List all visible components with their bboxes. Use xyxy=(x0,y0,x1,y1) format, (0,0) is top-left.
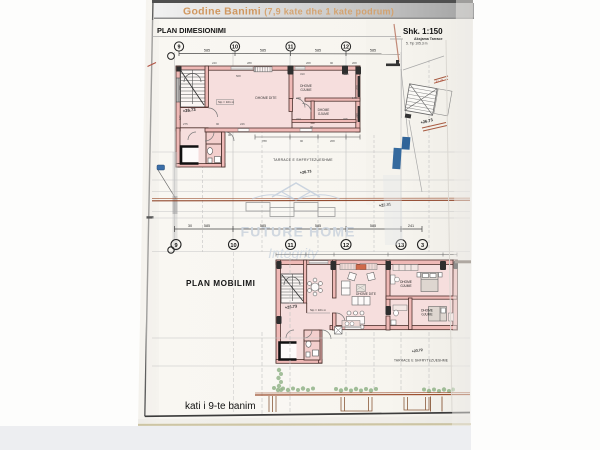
svg-text:268: 268 xyxy=(352,61,357,65)
svg-text:268: 268 xyxy=(306,61,311,65)
svg-text:248: 248 xyxy=(296,96,301,100)
svg-text:568: 568 xyxy=(236,74,241,78)
svg-text:288: 288 xyxy=(247,61,252,65)
svg-text:Sip = 101 m: Sip = 101 m xyxy=(218,100,235,104)
svg-text:240: 240 xyxy=(212,61,217,65)
svg-text:120: 120 xyxy=(178,115,182,120)
svg-text:30: 30 xyxy=(188,224,192,228)
svg-text:5. Tip 105.3 m: 5. Tip 105.3 m xyxy=(406,42,428,46)
svg-text:90: 90 xyxy=(330,61,334,65)
svg-text:12: 12 xyxy=(343,243,349,249)
svg-text:12: 12 xyxy=(343,45,349,51)
svg-text:585: 585 xyxy=(204,224,210,228)
svg-text:30: 30 xyxy=(228,133,232,137)
svg-text:PLAN MOBILIMI: PLAN MOBILIMI xyxy=(186,279,255,288)
svg-text:585: 585 xyxy=(315,49,321,53)
svg-text:241: 241 xyxy=(408,224,414,228)
svg-text:9: 9 xyxy=(178,45,181,51)
svg-text:90: 90 xyxy=(216,122,220,126)
svg-text:Sip = 101 m: Sip = 101 m xyxy=(310,308,327,312)
svg-text:155: 155 xyxy=(344,72,349,76)
svg-text:246: 246 xyxy=(240,122,245,126)
svg-text:310: 310 xyxy=(300,72,305,76)
svg-text:585: 585 xyxy=(260,49,266,53)
svg-text:DHOME DITE: DHOME DITE xyxy=(356,292,376,296)
svg-text:9: 9 xyxy=(174,243,177,249)
svg-text:GJUME: GJUME xyxy=(421,313,432,317)
svg-text:248: 248 xyxy=(355,113,359,118)
svg-text:3: 3 xyxy=(421,243,424,249)
svg-text:kati i 9-te banim: kati i 9-te banim xyxy=(185,401,256,412)
svg-text:213: 213 xyxy=(296,117,301,121)
svg-text:GJUME: GJUME xyxy=(400,284,411,288)
svg-text:GJUME: GJUME xyxy=(300,88,311,92)
svg-text:788: 788 xyxy=(262,139,267,143)
svg-text:DHOME DITE: DHOME DITE xyxy=(255,96,277,100)
svg-text:TARRACE E SHFRYTEZUESHME: TARRACE E SHFRYTEZUESHME xyxy=(394,359,448,363)
svg-text:TARRACE E SHFRYTEZUESHME: TARRACE E SHFRYTEZUESHME xyxy=(273,158,333,162)
svg-text:325: 325 xyxy=(343,117,348,121)
svg-text:Aksjama Tarrace: Aksjama Tarrace xyxy=(414,37,443,41)
svg-text:11: 11 xyxy=(288,45,294,51)
svg-text:275: 275 xyxy=(183,122,188,126)
svg-text:268: 268 xyxy=(355,85,359,90)
svg-text:585: 585 xyxy=(204,49,210,53)
svg-text:585: 585 xyxy=(370,224,376,228)
svg-text:90: 90 xyxy=(310,125,314,129)
svg-text:Godine Banimi (7,9 kate dhe 1: Godine Banimi (7,9 kate dhe 1 kate podru… xyxy=(183,6,394,18)
svg-text:GJUME: GJUME xyxy=(318,112,329,116)
svg-text:FUTURE HOME: FUTURE HOME xyxy=(240,225,355,241)
svg-text:Shk. 1:150: Shk. 1:150 xyxy=(403,27,443,36)
svg-text:268: 268 xyxy=(330,139,335,143)
svg-text:PLAN DIMESIONIMI: PLAN DIMESIONIMI xyxy=(157,26,226,35)
svg-text:585: 585 xyxy=(370,49,376,53)
svg-text:090: 090 xyxy=(178,85,182,90)
svg-text:Integrity: Integrity xyxy=(268,245,319,261)
svg-text:90: 90 xyxy=(300,139,304,143)
svg-text:10: 10 xyxy=(230,243,236,249)
svg-text:10: 10 xyxy=(232,45,238,51)
svg-text:140: 140 xyxy=(352,96,357,100)
